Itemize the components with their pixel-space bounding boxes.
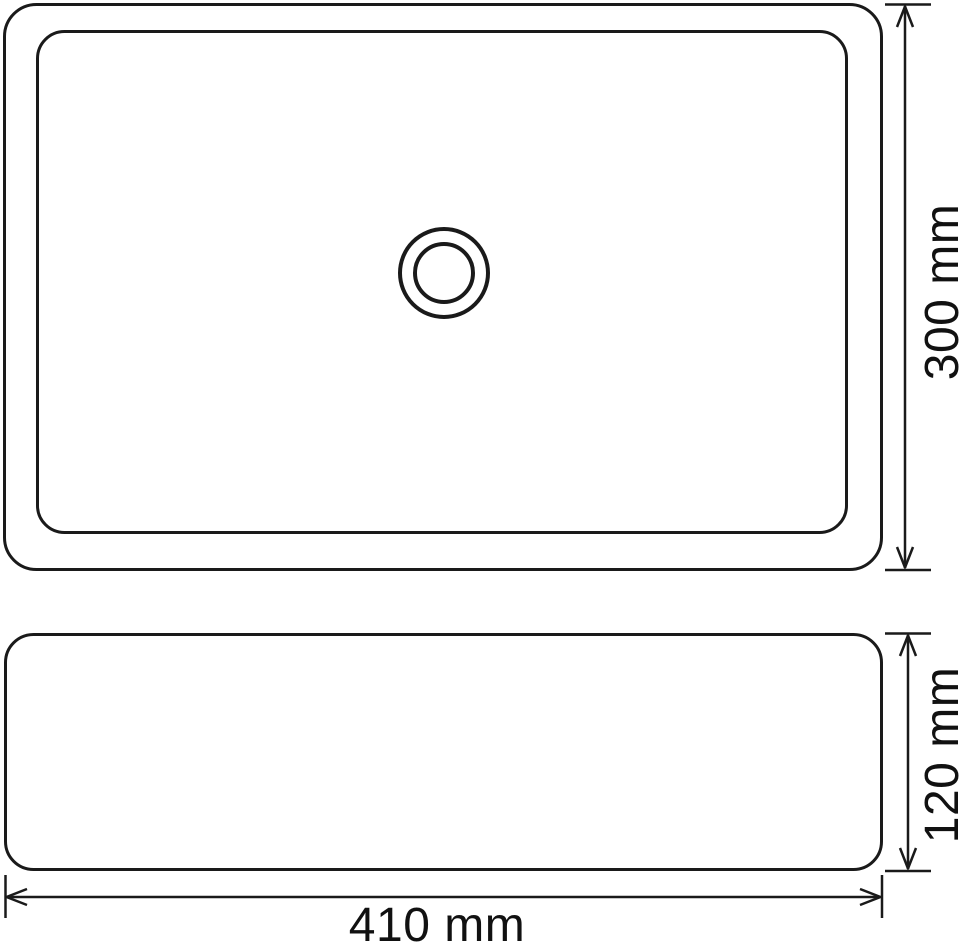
front-view <box>6 635 882 870</box>
top-view-inner-basin-edge <box>38 32 847 533</box>
dimension-height-label: 120 mm <box>916 667 960 843</box>
technical-drawing-page: 300 mm 120 mm 410 mm <box>0 0 960 949</box>
dimension-height-120: 120 mm <box>885 634 960 872</box>
top-view <box>5 5 882 570</box>
top-view-outer-rim <box>5 5 882 570</box>
dimension-width-label: 410 mm <box>349 899 525 949</box>
dimension-depth-300: 300 mm <box>885 5 960 571</box>
drain-inner-circle <box>415 244 473 302</box>
front-view-body <box>6 635 882 870</box>
dimension-width-410: 410 mm <box>6 875 883 949</box>
drawing-root: 300 mm 120 mm 410 mm <box>5 5 960 949</box>
dimension-depth-label: 300 mm <box>916 204 960 380</box>
basin-dimension-drawing: 300 mm 120 mm 410 mm <box>0 0 960 949</box>
